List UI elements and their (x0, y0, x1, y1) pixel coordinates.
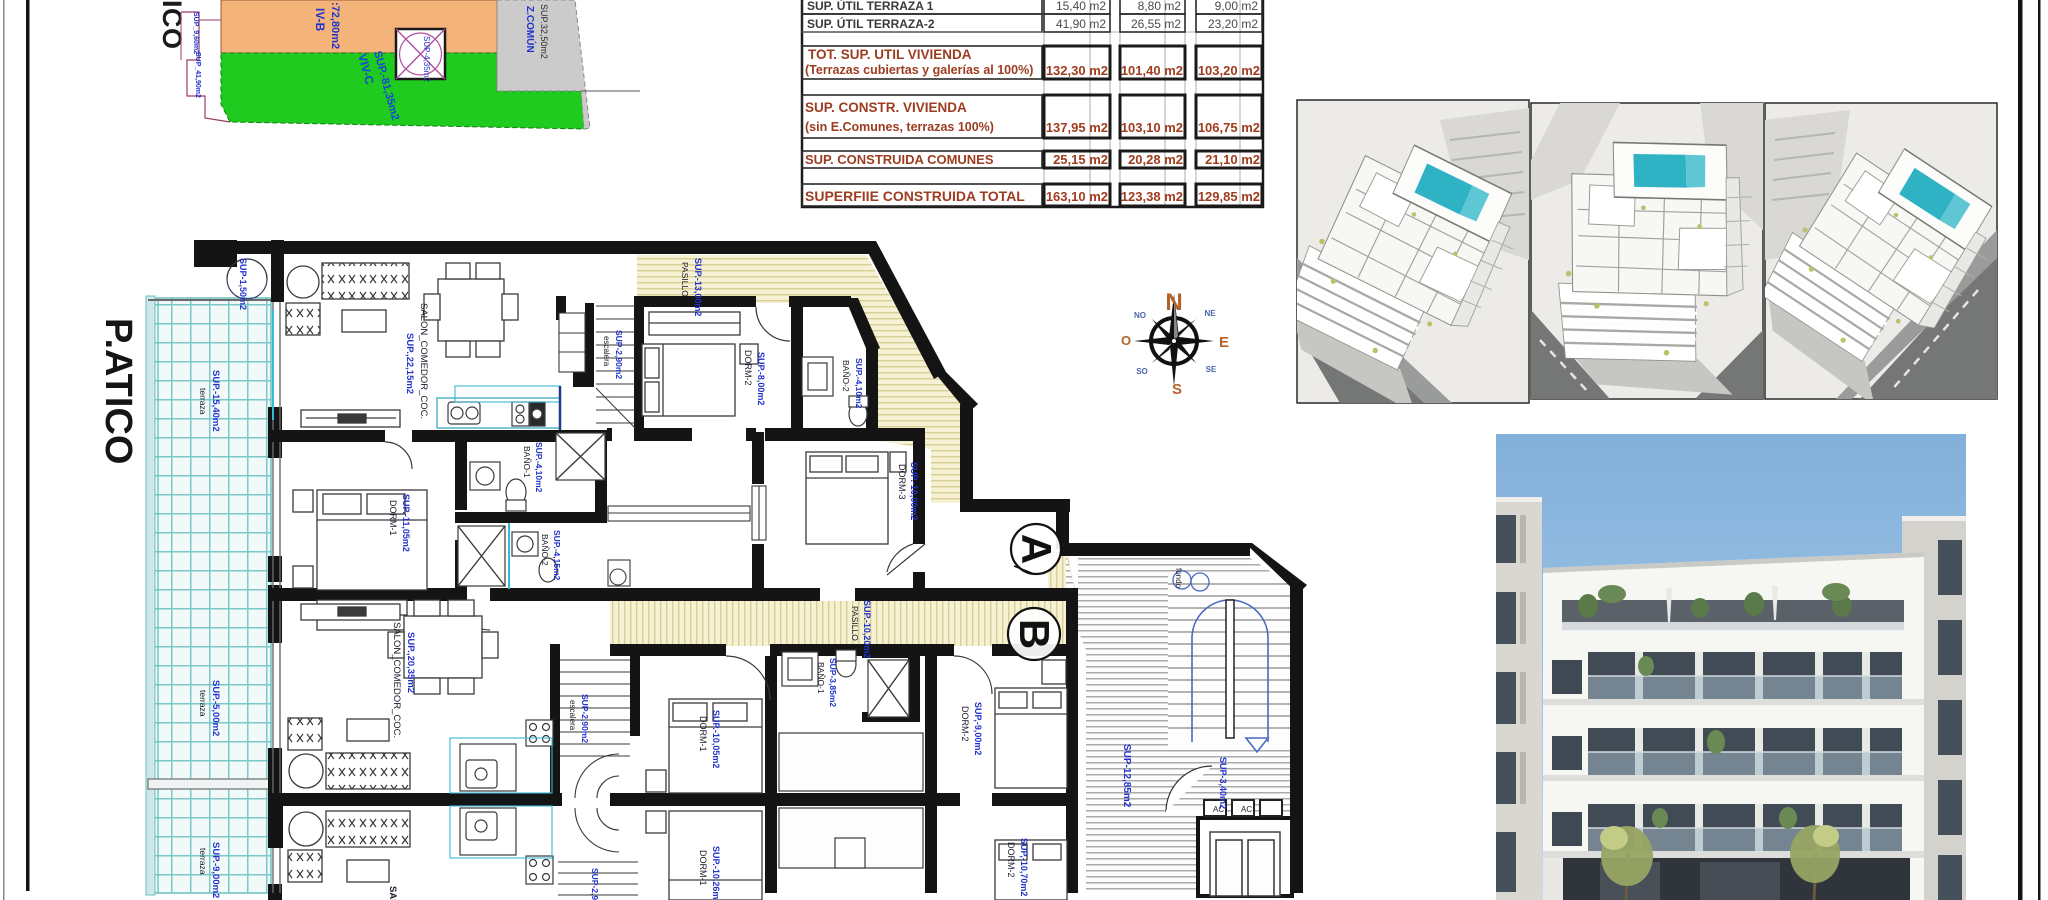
svg-text:terraza: terraza (198, 388, 208, 415)
svg-text:25,15 m2: 25,15 m2 (1053, 152, 1108, 167)
svg-text:9,00 m2: 9,00 m2 (1215, 0, 1259, 13)
svg-text:SUPERFIIE CONSTRUIDA TOTAL: SUPERFIIE CONSTRUIDA TOTAL (805, 188, 1025, 204)
svg-text:132,30 m2: 132,30 m2 (1046, 63, 1108, 78)
svg-text:TOT. SUP. UTIL VIVIENDA: TOT. SUP. UTIL VIVIENDA (808, 47, 972, 62)
svg-text:137,95 m2: 137,95 m2 (1046, 120, 1108, 135)
svg-text:SUP.-10,20m2: SUP.-10,20m2 (862, 600, 872, 658)
svg-text:SUP.-8,00m2: SUP.-8,00m2 (756, 352, 766, 405)
svg-text:23,20 m2: 23,20 m2 (1208, 17, 1258, 31)
svg-text:SUP-2,90: SUP-2,90 (590, 868, 600, 900)
svg-text:26,55 m2: 26,55 m2 (1131, 17, 1181, 31)
svg-text:SUP. CONSTR. VIVIENDA: SUP. CONSTR. VIVIENDA (805, 100, 967, 115)
svg-text:103,10 m2: 103,10 m2 (1121, 120, 1183, 135)
svg-text:escalera: escalera (602, 336, 611, 367)
svg-text:NO: NO (1134, 311, 1146, 320)
svg-text:terraza: terraza (198, 848, 208, 875)
svg-text:(Terrazas cubiertas y galerías: (Terrazas cubiertas y galerías al 100%) (805, 63, 1033, 77)
svg-text:21,10 m2: 21,10 m2 (1205, 152, 1260, 167)
svg-text:DORM-2: DORM-2 (1006, 842, 1016, 878)
svg-text:B: B (1011, 619, 1058, 649)
svg-text:SUP.-4,10m2: SUP.-4,10m2 (854, 358, 864, 409)
svg-text:SUP. ÚTIL TERRAZA 1: SUP. ÚTIL TERRAZA 1 (807, 0, 934, 13)
svg-text:123,38 m2: 123,38 m2 (1121, 189, 1183, 204)
svg-text:SUP-3,85m2: SUP-3,85m2 (828, 658, 838, 707)
svg-text:SO: SO (1136, 367, 1148, 376)
svg-text:SALON: SALON (387, 886, 398, 900)
svg-text::72,80m2: :72,80m2 (329, 2, 341, 49)
svg-text:DORM-2: DORM-2 (960, 706, 970, 742)
svg-text:BAÑO-1: BAÑO-1 (522, 446, 532, 478)
svg-text:PASILLO: PASILLO (850, 606, 860, 641)
svg-text:20,28 m2: 20,28 m2 (1128, 152, 1183, 167)
svg-text:SUP.,20,35m2: SUP.,20,35m2 (405, 632, 416, 693)
svg-text:SUP-12,85m2: SUP-12,85m2 (1121, 744, 1132, 808)
svg-text:SUP-2,90m2: SUP-2,90m2 (614, 330, 624, 379)
svg-text:SUP. ÚTIL TERRAZA-2: SUP. ÚTIL TERRAZA-2 (807, 16, 935, 31)
svg-text:SUP-2,90m2: SUP-2,90m2 (580, 694, 590, 743)
svg-text:SUP. CONSTRUIDA COMUNES: SUP. CONSTRUIDA COMUNES (805, 152, 994, 167)
svg-text:escalera: escalera (568, 700, 577, 731)
svg-text:P.ATICO: P.ATICO (97, 318, 139, 464)
svg-text:SUP.-10,26m2: SUP.-10,26m2 (711, 846, 721, 900)
svg-text:SUP.32,50m2: SUP.32,50m2 (539, 4, 549, 59)
svg-text:terraza: terraza (198, 690, 208, 717)
svg-text:E: E (1219, 334, 1229, 351)
svg-text:O: O (1121, 333, 1131, 348)
svg-text:SALON_COMEDOR_COC.: SALON_COMEDOR_COC. (391, 622, 402, 738)
svg-text:SUP.-5,00m2: SUP.-5,00m2 (210, 680, 221, 736)
svg-text:DORM-1: DORM-1 (698, 850, 708, 886)
svg-text:SUP,-9,00m2: SUP,-9,00m2 (973, 702, 983, 755)
svg-text:SE: SE (1206, 365, 1217, 374)
svg-text:SUP.-9,00m2: SUP.-9,00m2 (210, 842, 221, 898)
svg-text:103,20 m2: 103,20 m2 (1198, 63, 1260, 78)
svg-text:S: S (1172, 381, 1182, 398)
svg-text:15,40 m2: 15,40 m2 (1056, 0, 1106, 13)
svg-text:BAÑO-1: BAÑO-1 (816, 662, 826, 694)
svg-text:ICO: ICO (157, 0, 187, 50)
svg-text:Z.COMÚN: Z.COMÚN (524, 6, 537, 53)
svg-text:(sin E.Comunes, terrazas 100%): (sin E.Comunes, terrazas 100%) (805, 120, 994, 134)
svg-text:SUP.-4,15m2: SUP.-4,15m2 (552, 530, 562, 581)
svg-text:DORM-1: DORM-1 (698, 716, 708, 752)
svg-text:N: N (1165, 289, 1182, 316)
svg-text:fondo: fondo (1174, 568, 1183, 589)
svg-text:A: A (1013, 534, 1060, 564)
svg-text:SUP,-10,70m2: SUP,-10,70m2 (1019, 838, 1029, 896)
svg-text:SUP.-13,00m2: SUP.-13,00m2 (693, 258, 703, 316)
svg-text:DORM-2: DORM-2 (743, 350, 753, 386)
svg-text:SUP.-15,40m2: SUP.-15,40m2 (210, 370, 221, 432)
svg-text:PASILLO: PASILLO (680, 262, 690, 297)
svg-text:SUP-1,50m2: SUP-1,50m2 (238, 258, 248, 310)
svg-text:SUP.-10,05m2: SUP.-10,05m2 (711, 710, 721, 768)
svg-text:106,75 m2: 106,75 m2 (1198, 120, 1260, 135)
svg-text:IV-B: IV-B (313, 8, 327, 32)
svg-text:41,90 m2: 41,90 m2 (1056, 17, 1106, 31)
svg-text:AC: AC (1241, 805, 1252, 814)
svg-text:8,80 m2: 8,80 m2 (1138, 0, 1182, 13)
svg-text:SUP.,22,15m2: SUP.,22,15m2 (404, 333, 415, 394)
svg-text:SUP.-11,05m2: SUP.-11,05m2 (401, 494, 411, 552)
svg-text:163,10 m2: 163,10 m2 (1046, 189, 1108, 204)
svg-text:NE: NE (1204, 309, 1216, 318)
svg-text:SUP.-4,10m2: SUP.-4,10m2 (534, 442, 544, 493)
svg-text:DORM-3: DORM-3 (897, 464, 907, 500)
svg-text:SUP-3,40m2: SUP-3,40m2 (1218, 757, 1228, 809)
svg-text:BAÑO-2: BAÑO-2 (841, 360, 851, 392)
svg-text:SUP_9,60m2: SUP_9,60m2 (192, 12, 199, 54)
svg-text:SUP-4,35m2: SUP-4,35m2 (422, 36, 431, 82)
svg-text:BAÑO-2: BAÑO-2 (540, 534, 550, 566)
svg-text:SALON_COMEDOR_COC.: SALON_COMEDOR_COC. (418, 303, 429, 419)
svg-text:129,85 m2: 129,85 m2 (1198, 189, 1260, 204)
svg-text:SUP_41,90m2: SUP_41,90m2 (194, 52, 201, 98)
svg-text:101,40 m2: 101,40 m2 (1121, 63, 1183, 78)
svg-text:DORM-1: DORM-1 (388, 500, 398, 536)
svg-text:SUP.-10,00m2: SUP.-10,00m2 (909, 462, 919, 520)
